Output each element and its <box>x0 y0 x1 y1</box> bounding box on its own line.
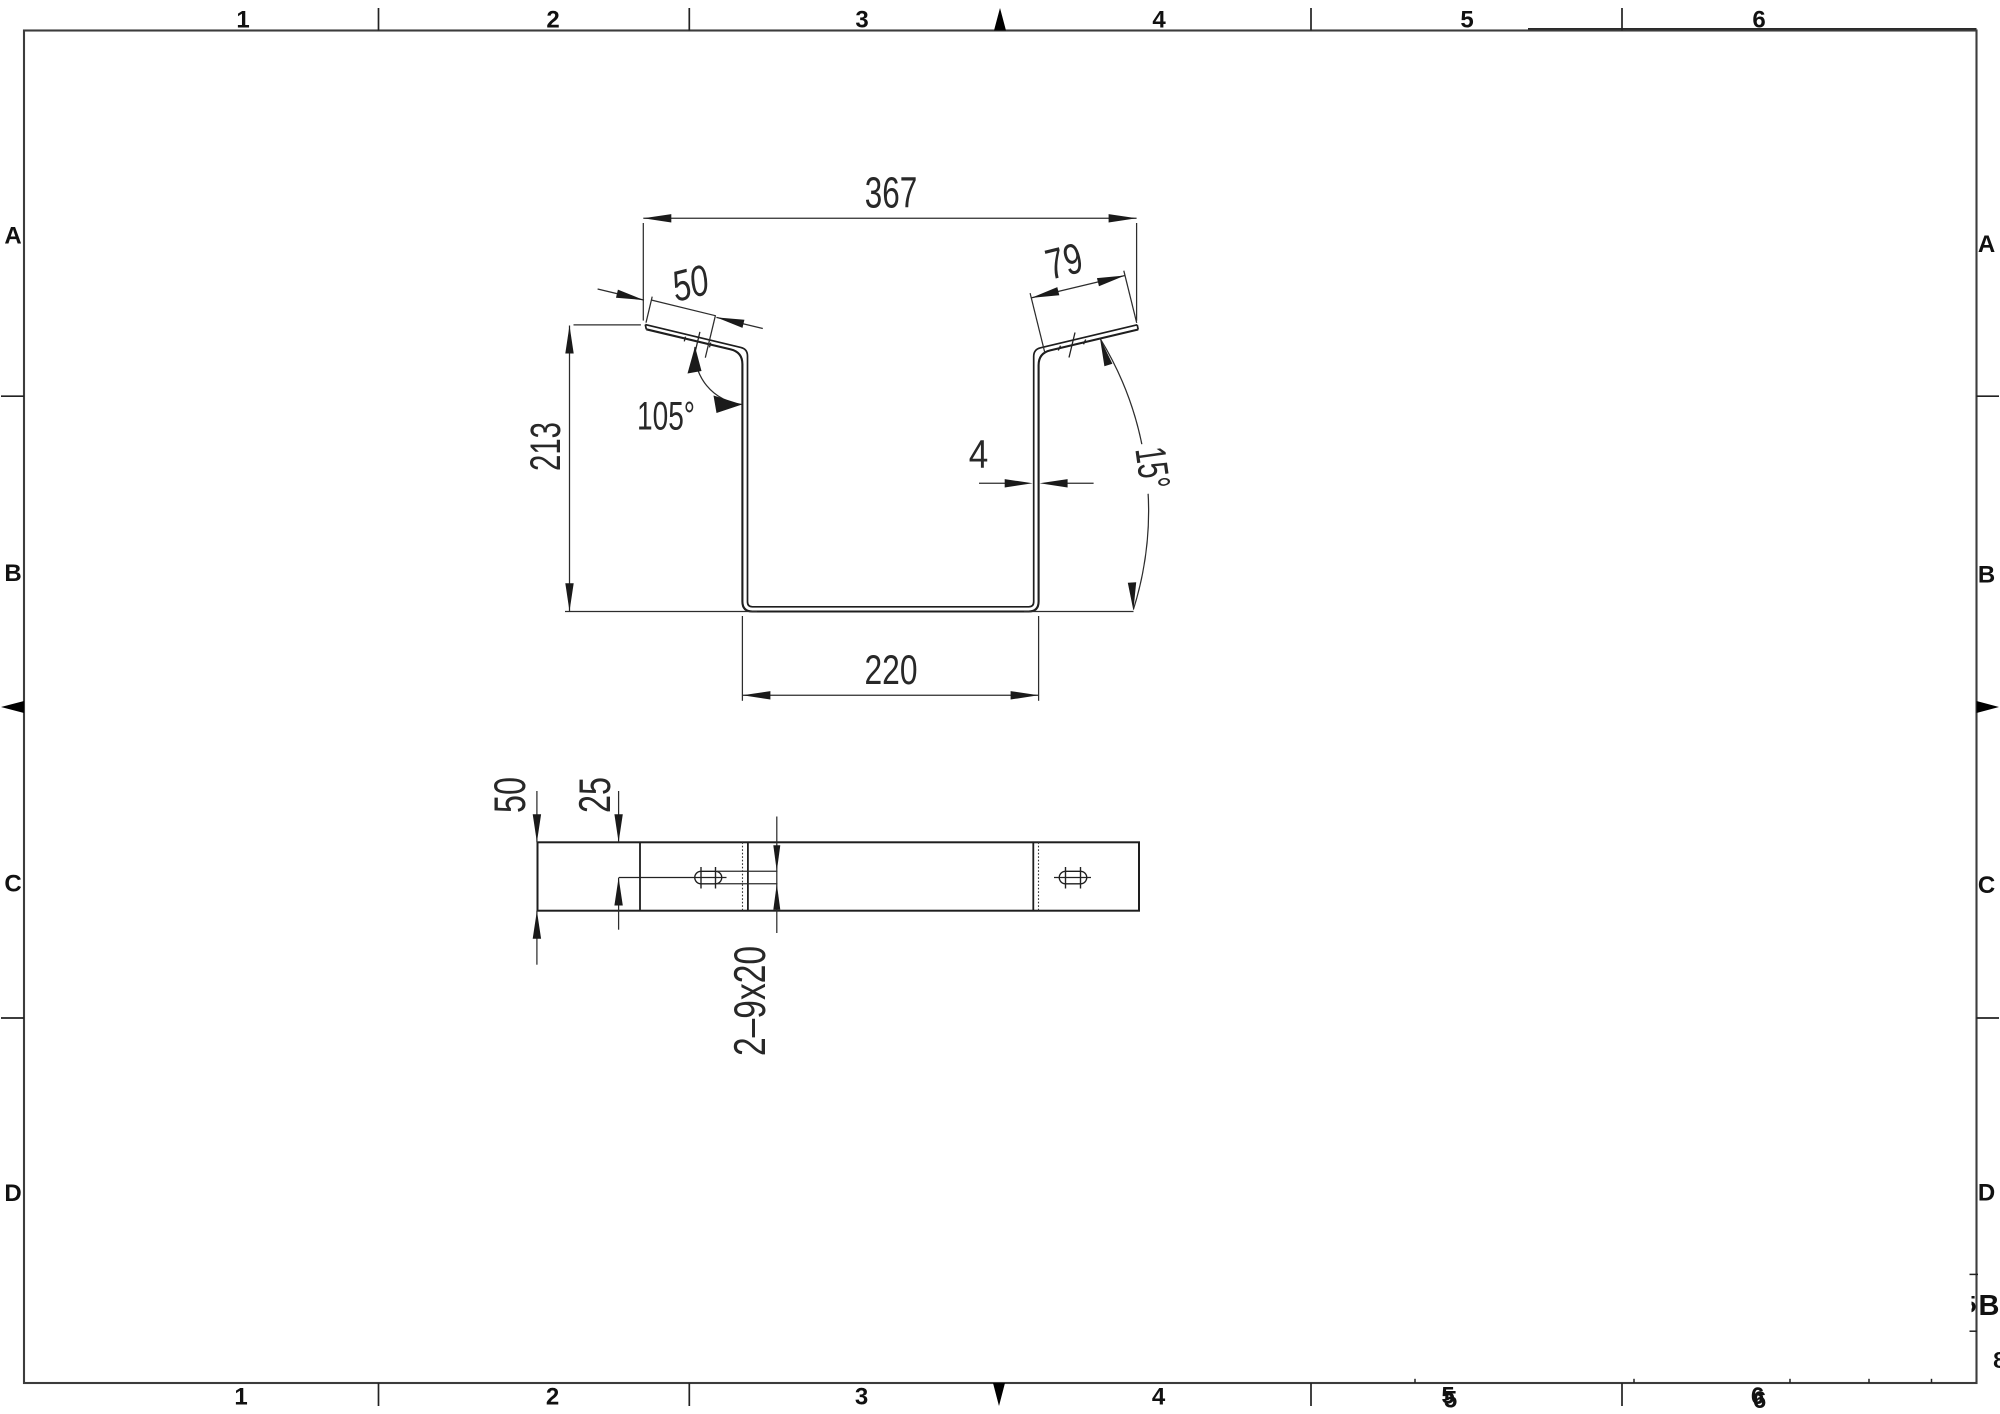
svg-text:213: 213 <box>522 422 570 471</box>
svg-text:79: 79 <box>1041 234 1088 289</box>
svg-text:1: 1 <box>236 7 249 34</box>
svg-text:D: D <box>4 1180 21 1207</box>
svg-text:2–9x20: 2–9x20 <box>726 946 775 1056</box>
svg-text:2: 2 <box>546 1384 559 1411</box>
svg-text:D: D <box>1978 1180 1995 1207</box>
svg-text:6: 6 <box>1751 1383 1764 1410</box>
svg-text:50: 50 <box>667 256 714 311</box>
svg-text:B: B <box>4 560 21 587</box>
svg-text:A: A <box>4 223 21 250</box>
svg-text:C: C <box>1978 872 1995 899</box>
svg-text:B: B <box>1979 1290 2000 1322</box>
svg-text:25: 25 <box>571 777 620 813</box>
svg-text:4: 4 <box>1152 7 1166 34</box>
svg-text:5: 5 <box>1460 7 1473 34</box>
svg-text:4: 4 <box>1152 1384 1166 1411</box>
svg-text:220: 220 <box>865 646 918 693</box>
svg-text:105°: 105° <box>637 395 695 439</box>
svg-text:3: 3 <box>855 7 868 34</box>
svg-text:5: 5 <box>1441 1383 1454 1410</box>
svg-text:4: 4 <box>969 433 989 477</box>
svg-text:8: 8 <box>1993 1347 2000 1373</box>
svg-text:1: 1 <box>234 1384 247 1411</box>
svg-text:3: 3 <box>855 1384 868 1411</box>
svg-text:C: C <box>4 871 21 898</box>
svg-text:2: 2 <box>546 7 559 34</box>
svg-text:B: B <box>1978 562 1995 589</box>
svg-text:6: 6 <box>1752 7 1765 34</box>
svg-text:15°: 15° <box>1125 444 1178 492</box>
svg-text:A: A <box>1978 231 1995 258</box>
svg-text:367: 367 <box>865 170 918 218</box>
svg-text:50: 50 <box>486 777 535 813</box>
